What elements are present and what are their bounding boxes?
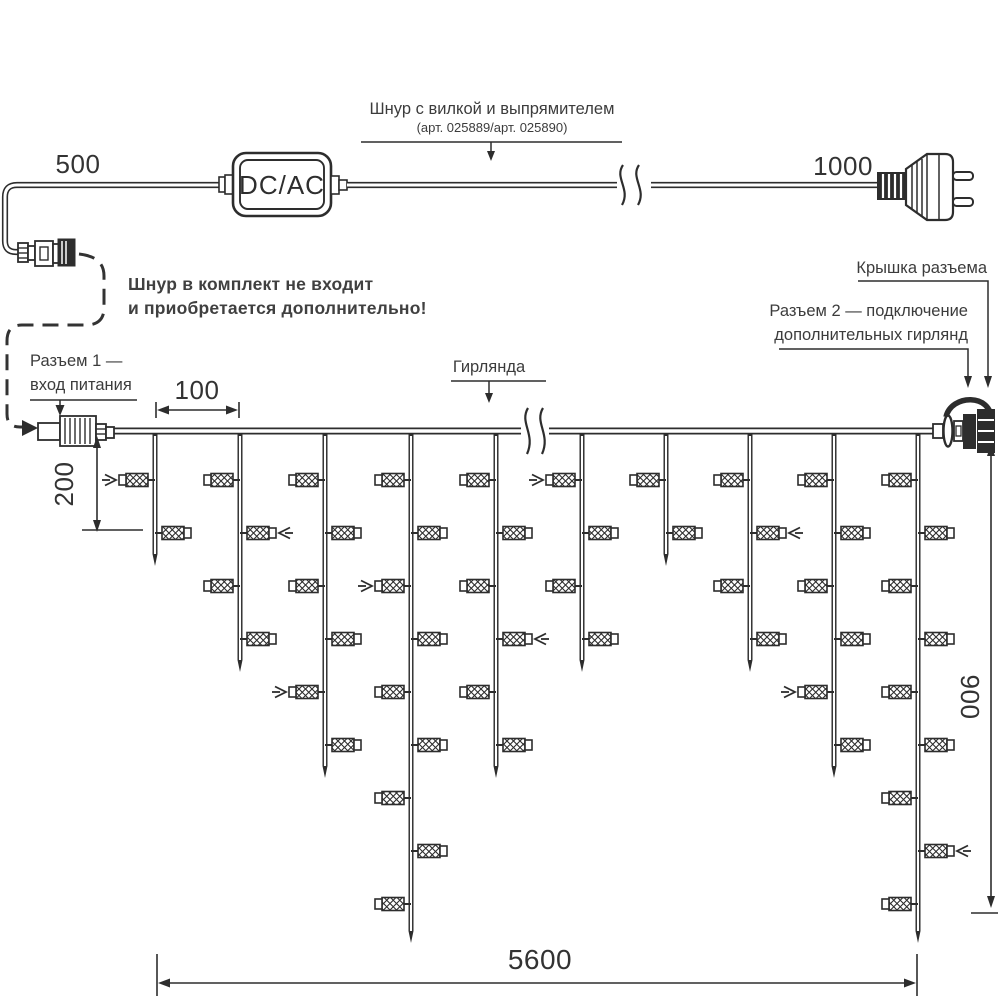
dim-arrowhead (226, 406, 238, 415)
converter-right-nub (331, 176, 339, 194)
led-bulb-body (296, 474, 318, 487)
wiring-diagram: DC/AC 500 1000 Шнур (0, 0, 1000, 1000)
led-bulb-body (925, 527, 947, 540)
connector1-line2: вход питания (30, 376, 132, 394)
led-bulb-body (467, 580, 489, 593)
led-bulb-body (889, 474, 911, 487)
dashed-path-arrowhead (22, 420, 38, 436)
led-bulb-body (247, 633, 269, 646)
drop-tip (832, 766, 837, 778)
warning-line1: Шнур в комплект не входит (128, 274, 373, 294)
led-bulb-body (637, 474, 659, 487)
led-bulb-cap (354, 634, 361, 644)
dim-5600-group: 5600 (157, 944, 917, 996)
led-bulb-body (247, 527, 269, 540)
led-bulb-body (296, 580, 318, 593)
led-bulb-body (418, 633, 440, 646)
drop-tip (664, 554, 669, 566)
power-plug (877, 154, 973, 220)
drop-tip (494, 766, 499, 778)
dc-cord-connector (18, 239, 75, 266)
led-bulb-cap (798, 475, 805, 485)
led-bulb-body (467, 686, 489, 699)
led-bulb-body (503, 739, 525, 752)
led-bulb-body (126, 474, 148, 487)
led-bulb-cap (375, 793, 382, 803)
led-bulb-cap (354, 740, 361, 750)
cord-break-mark (620, 165, 624, 205)
dim-100-group: 100 (156, 375, 239, 418)
led-bulb-cap (184, 528, 191, 538)
dim-900-group: 900 (955, 444, 998, 913)
led-bulb-cap (525, 634, 532, 644)
led-bulb-body (332, 527, 354, 540)
led-bulb-body (805, 580, 827, 593)
led-bulb-cap (546, 581, 553, 591)
led-bulb-cap (882, 475, 889, 485)
led-bulb-body (841, 739, 863, 752)
dim-arrowhead (904, 979, 916, 988)
power-cord-subtitle: (арт. 025889/арт. 025890) (417, 120, 568, 135)
led-bulb-cap (947, 528, 954, 538)
dc-ac-converter: DC/AC (219, 153, 347, 216)
dim-1000: 1000 (813, 151, 873, 181)
led-bulb-cap (375, 581, 382, 591)
icicle-drops (102, 433, 971, 943)
led-bulb-body (418, 527, 440, 540)
led-bulb-cap (354, 528, 361, 538)
led-bulb-cap (525, 740, 532, 750)
led-bulb-cap (375, 899, 382, 909)
led-bulb-body (503, 633, 525, 646)
led-bulb-body (211, 474, 233, 487)
led-bulb-cap (798, 687, 805, 697)
dim-900: 900 (955, 675, 985, 720)
power-cord-title: Шнур с вилкой и выпрямителем (370, 100, 615, 118)
plug-body (906, 154, 953, 220)
connector2-with-cap (933, 400, 995, 453)
led-bulb-cap (611, 634, 618, 644)
led-bulb-body (162, 527, 184, 540)
led-bulb-cap (269, 634, 276, 644)
led-bulb-cap (863, 528, 870, 538)
cap-label: Крышка разъема (856, 259, 992, 388)
led-bulb-body (418, 739, 440, 752)
leader-arrowhead (984, 376, 992, 388)
connector1 (38, 416, 114, 446)
led-bulb-cap (289, 581, 296, 591)
converter-right-nub2 (339, 180, 347, 190)
led-bulb-cap (525, 528, 532, 538)
dim-5600: 5600 (508, 944, 572, 975)
led-bulb-body (889, 792, 911, 805)
dim-arrowhead (158, 979, 170, 988)
led-bulb-cap (289, 475, 296, 485)
drop-tip (153, 554, 158, 566)
dim-arrowhead (987, 896, 995, 908)
led-bulb-body (841, 633, 863, 646)
leader-line (779, 349, 968, 377)
connector1-label: Разъем 1 — вход питания (30, 352, 137, 416)
led-bulb-body (553, 474, 575, 487)
led-bulb-body (721, 580, 743, 593)
led-bulb-cap (460, 687, 467, 697)
cap-text: Крышка разъема (856, 259, 987, 277)
leader-arrowhead (487, 151, 495, 161)
plug-prong-top (953, 172, 973, 180)
led-bulb-body (382, 474, 404, 487)
led-bulb-cap (269, 528, 276, 538)
led-bulb-body (211, 580, 233, 593)
led-bulb-cap (440, 846, 447, 856)
led-bulb-cap (714, 475, 721, 485)
led-bulb-cap (947, 740, 954, 750)
connector1-line1: Разъем 1 — (30, 352, 123, 370)
led-bulb-body (503, 527, 525, 540)
drop-tip (238, 660, 243, 672)
leader-arrowhead (964, 376, 972, 388)
led-bulb-cap (863, 634, 870, 644)
drop-tip (748, 660, 753, 672)
led-bulb-body (841, 527, 863, 540)
drop-tip (916, 931, 921, 943)
dim-arrowhead (157, 406, 169, 415)
led-bulb-cap (546, 475, 553, 485)
led-bulb-cap (440, 528, 447, 538)
led-bulb-body (757, 527, 779, 540)
led-bulb-body (382, 686, 404, 699)
connector2-line1: Разъем 2 — подключение (769, 302, 968, 320)
led-bulb-body (467, 474, 489, 487)
led-bulb-cap (882, 687, 889, 697)
led-bulb-body (553, 580, 575, 593)
led-bulb-cap (119, 475, 126, 485)
led-bulb-cap (375, 687, 382, 697)
led-bulb-cap (882, 793, 889, 803)
led-bulb-cap (798, 581, 805, 591)
led-bulb-cap (714, 581, 721, 591)
led-bulb-body (889, 580, 911, 593)
led-bulb-body (382, 898, 404, 911)
led-bulb-body (382, 792, 404, 805)
led-bulb-cap (779, 634, 786, 644)
drop-tip (580, 660, 585, 672)
led-bulb-cap (695, 528, 702, 538)
led-bulb-cap (947, 634, 954, 644)
led-bulb-body (757, 633, 779, 646)
plug-prong-bottom (953, 198, 973, 206)
led-bulb-cap (204, 475, 211, 485)
led-bulb-cap (863, 740, 870, 750)
led-bulb-body (805, 474, 827, 487)
power-cord-assembly: DC/AC 500 1000 Шнур (5, 100, 973, 266)
wire-break-mark (525, 408, 529, 454)
leader-arrowhead (485, 393, 493, 403)
converter-label: DC/AC (239, 170, 325, 200)
led-bulb-body (589, 633, 611, 646)
led-bulb-body (589, 527, 611, 540)
led-bulb-cap (204, 581, 211, 591)
led-bulb-body (889, 898, 911, 911)
led-bulb-body (889, 686, 911, 699)
led-bulb-cap (460, 581, 467, 591)
led-bulb-cap (947, 846, 954, 856)
dim-200: 200 (49, 462, 79, 507)
led-bulb-cap (375, 475, 382, 485)
led-bulb-body (382, 580, 404, 593)
optional-cord-path (7, 254, 104, 436)
led-bulb-cap (779, 528, 786, 538)
led-bulb-cap (440, 634, 447, 644)
led-bulb-body (418, 845, 440, 858)
connector2-label: Разъем 2 — подключение дополнительных ги… (769, 302, 972, 388)
led-bulb-body (673, 527, 695, 540)
connector2-line2: дополнительных гирлянд (774, 326, 968, 344)
warning-line2: и приобретается дополнительно! (128, 298, 427, 318)
led-bulb-body (925, 739, 947, 752)
garland-label: Гирлянда (451, 358, 546, 403)
led-bulb-cap (440, 740, 447, 750)
garland-text: Гирлянда (453, 358, 526, 376)
drop-tip (323, 766, 328, 778)
led-bulb-body (332, 633, 354, 646)
led-bulb-cap (630, 475, 637, 485)
led-bulb-cap (611, 528, 618, 538)
drop-tip (409, 931, 414, 943)
dim-500: 500 (56, 149, 101, 179)
led-bulb-cap (289, 687, 296, 697)
led-bulb-body (925, 633, 947, 646)
diagram-canvas: DC/AC 500 1000 Шнур (0, 0, 1000, 1000)
led-bulb-body (332, 739, 354, 752)
converter-left-nub (219, 177, 225, 192)
wire-break-mark2 (540, 408, 544, 454)
led-bulb-body (925, 845, 947, 858)
led-bulb-cap (460, 475, 467, 485)
dashed-connection-path (7, 254, 104, 427)
leader-arrowhead (56, 405, 65, 416)
led-bulb-body (805, 686, 827, 699)
dim-100: 100 (175, 375, 220, 405)
led-bulb-cap (882, 581, 889, 591)
led-bulb-body (296, 686, 318, 699)
cord-break-mark2 (636, 165, 640, 205)
led-bulb-body (721, 474, 743, 487)
led-bulb-cap (882, 899, 889, 909)
